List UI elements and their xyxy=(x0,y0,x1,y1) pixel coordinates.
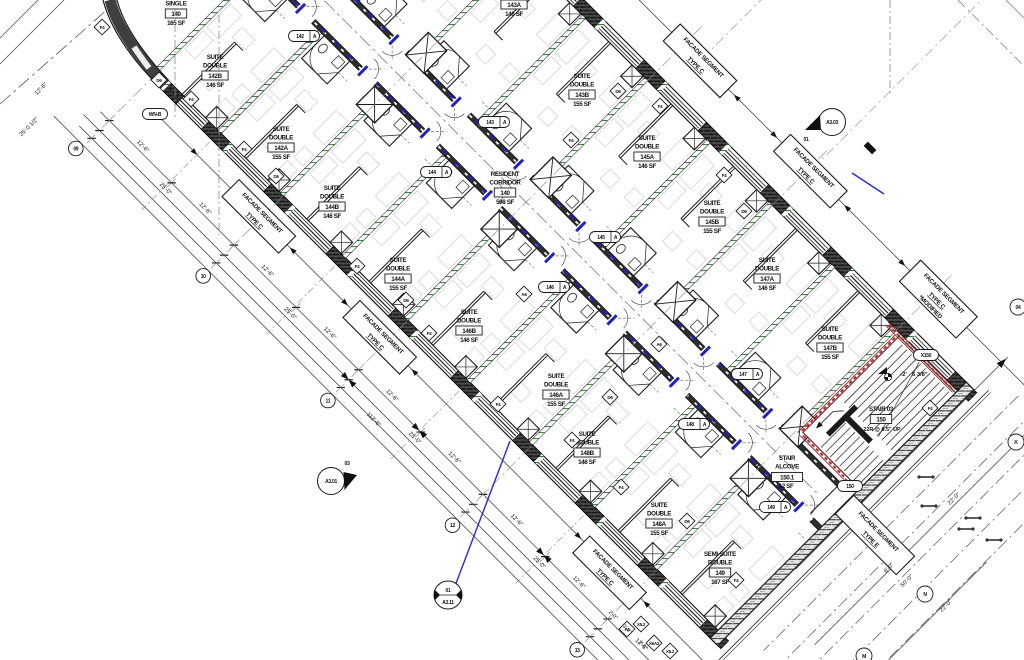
svg-text:142B: 142B xyxy=(208,73,222,80)
svg-text:DOUBLE: DOUBLE xyxy=(570,82,594,89)
svg-text:SUITE: SUITE xyxy=(579,431,596,438)
svg-text:DOUBLE: DOUBLE xyxy=(544,382,568,389)
svg-text:146 SF: 146 SF xyxy=(206,82,224,89)
svg-text:SINGLE: SINGLE xyxy=(166,1,187,8)
svg-text:X5.2: X5.2 xyxy=(637,622,646,627)
svg-text:D6: D6 xyxy=(684,519,690,524)
svg-text:09: 09 xyxy=(73,147,78,153)
svg-text:SUITE: SUITE xyxy=(822,326,839,333)
svg-text:WN-B: WN-B xyxy=(149,112,162,118)
svg-text:F4: F4 xyxy=(734,578,740,583)
svg-text:145: 145 xyxy=(597,235,605,241)
svg-text:148B: 148B xyxy=(580,450,594,457)
svg-text:A6: A6 xyxy=(656,342,662,347)
svg-text:SUITE: SUITE xyxy=(207,54,224,61)
svg-text:12: 12 xyxy=(450,523,455,529)
svg-text:147A: 147A xyxy=(760,276,774,283)
svg-text:D6: D6 xyxy=(273,174,279,179)
svg-text:167 SF: 167 SF xyxy=(711,579,729,586)
svg-text:SUITE: SUITE xyxy=(461,309,478,316)
svg-text:150: 150 xyxy=(876,416,886,423)
svg-text:22R @ 6.5" UP: 22R @ 6.5" UP xyxy=(863,427,901,433)
svg-text:F4: F4 xyxy=(496,402,502,407)
svg-text:SUITE: SUITE xyxy=(574,73,591,80)
svg-text:DOUBLE: DOUBLE xyxy=(700,209,724,216)
svg-text:143: 143 xyxy=(486,120,494,126)
svg-text:155 SF: 155 SF xyxy=(650,530,668,537)
svg-text:F4: F4 xyxy=(658,104,664,109)
svg-text:D6: D6 xyxy=(607,395,613,400)
svg-text:147: 147 xyxy=(739,372,747,378)
svg-text:10: 10 xyxy=(201,274,206,280)
svg-text:D6: D6 xyxy=(615,89,621,94)
svg-text:STAIR 03: STAIR 03 xyxy=(869,406,894,413)
svg-text:142A: 142A xyxy=(274,145,288,152)
svg-text:STAIR: STAIR xyxy=(779,455,796,462)
svg-text:D6: D6 xyxy=(403,298,409,303)
svg-text:150.1: 150.1 xyxy=(780,474,795,481)
svg-text:CORRIDOR: CORRIDOR xyxy=(490,180,522,187)
svg-text:148A: 148A xyxy=(652,521,666,528)
svg-text:DOUBLE: DOUBLE xyxy=(269,135,293,142)
svg-text:155 SF: 155 SF xyxy=(547,401,565,408)
svg-text:A3.01: A3.01 xyxy=(325,479,337,485)
svg-text:F4: F4 xyxy=(189,97,195,102)
svg-text:D6: D6 xyxy=(741,209,747,214)
svg-text:X150: X150 xyxy=(921,353,932,359)
svg-text:144B: 144B xyxy=(325,204,339,211)
svg-text:144: 144 xyxy=(428,170,436,176)
svg-text:143B: 143B xyxy=(575,92,589,99)
svg-text:147B: 147B xyxy=(823,345,837,352)
svg-text:F4: F4 xyxy=(569,138,575,143)
svg-text:D6: D6 xyxy=(156,78,162,83)
svg-text:DOUBLE: DOUBLE xyxy=(203,63,227,70)
svg-text:598 SF: 598 SF xyxy=(496,199,514,206)
svg-text:ALCOVE: ALCOVE xyxy=(775,464,799,471)
svg-text:145A: 145A xyxy=(640,154,654,161)
svg-text:M: M xyxy=(862,654,866,660)
svg-text:146 SF: 146 SF xyxy=(638,163,656,170)
svg-text:DOUBLE: DOUBLE xyxy=(386,266,410,273)
svg-text:01: 01 xyxy=(446,588,451,594)
svg-text:149: 149 xyxy=(767,505,775,511)
svg-text:F4: F4 xyxy=(928,406,934,411)
svg-text:DOUBLE: DOUBLE xyxy=(457,318,481,325)
svg-text:13: 13 xyxy=(575,648,580,654)
svg-text:SUITE: SUITE xyxy=(639,135,656,142)
svg-text:146 SF: 146 SF xyxy=(505,11,523,18)
svg-text:F4: F4 xyxy=(100,25,106,30)
svg-text:155 SF: 155 SF xyxy=(703,228,721,235)
svg-text:155 SF: 155 SF xyxy=(573,101,591,108)
svg-text:F4: F4 xyxy=(722,173,728,178)
svg-text:12 SF: 12 SF xyxy=(779,483,794,490)
svg-text:SUITE: SUITE xyxy=(759,257,776,264)
svg-text:146 SF: 146 SF xyxy=(460,337,478,344)
svg-text:A6: A6 xyxy=(521,292,527,297)
svg-text:155 SF: 155 SF xyxy=(821,354,839,361)
svg-text:DOUBLE: DOUBLE xyxy=(755,266,779,273)
svg-text:-2' - 6 3/8": -2' - 6 3/8" xyxy=(900,372,928,378)
svg-text:DOUBLE: DOUBLE xyxy=(818,335,842,342)
svg-text:145B: 145B xyxy=(705,219,719,226)
svg-text:144A: 144A xyxy=(391,276,405,283)
svg-text:142: 142 xyxy=(296,34,304,40)
svg-text:146: 146 xyxy=(546,285,554,291)
svg-text:SUITE: SUITE xyxy=(548,373,565,380)
svg-text:SUITE: SUITE xyxy=(273,126,290,133)
svg-text:DOUBLE: DOUBLE xyxy=(708,560,732,567)
svg-text:140: 140 xyxy=(500,190,510,197)
svg-text:F4: F4 xyxy=(619,485,625,490)
svg-text:F4: F4 xyxy=(242,147,248,152)
svg-text:X6A2: X6A2 xyxy=(649,641,660,646)
svg-text:146 SF: 146 SF xyxy=(758,285,776,292)
svg-text:165 SF: 165 SF xyxy=(167,20,185,27)
svg-text:SEMI-SUITE: SEMI-SUITE xyxy=(704,551,736,558)
svg-text:F4: F4 xyxy=(355,264,361,269)
svg-text:RESIDENT: RESIDENT xyxy=(491,171,520,178)
svg-text:143A: 143A xyxy=(507,2,521,9)
svg-text:SUITE: SUITE xyxy=(651,502,668,509)
svg-text:SUITE: SUITE xyxy=(324,185,341,192)
svg-text:F4: F4 xyxy=(427,331,433,336)
svg-text:11: 11 xyxy=(326,399,331,405)
svg-text:149: 149 xyxy=(715,570,725,577)
svg-text:DOUBLE: DOUBLE xyxy=(320,194,344,201)
svg-text:155 SF: 155 SF xyxy=(389,285,407,292)
svg-text:01: 01 xyxy=(804,137,809,143)
svg-text:SUITE: SUITE xyxy=(390,257,407,264)
svg-text:A3.11: A3.11 xyxy=(442,600,454,606)
svg-text:DOUBLE: DOUBLE xyxy=(647,511,671,518)
svg-text:150: 150 xyxy=(846,484,854,490)
svg-text:146A: 146A xyxy=(549,392,563,399)
svg-text:F4: F4 xyxy=(570,438,576,443)
svg-text:DOUBLE: DOUBLE xyxy=(635,144,659,151)
svg-text:A3.03: A3.03 xyxy=(826,120,838,126)
svg-text:04: 04 xyxy=(1016,305,1021,311)
svg-text:148: 148 xyxy=(686,422,694,428)
svg-text:146 SF: 146 SF xyxy=(323,213,341,220)
svg-text:SUITE: SUITE xyxy=(704,200,721,207)
svg-text:X5.2: X5.2 xyxy=(666,649,675,654)
svg-text:155 SF: 155 SF xyxy=(272,154,290,161)
svg-text:146B: 146B xyxy=(462,328,476,335)
svg-text:146 SF: 146 SF xyxy=(578,459,596,466)
svg-text:140: 140 xyxy=(171,11,181,18)
svg-text:03: 03 xyxy=(345,461,350,467)
